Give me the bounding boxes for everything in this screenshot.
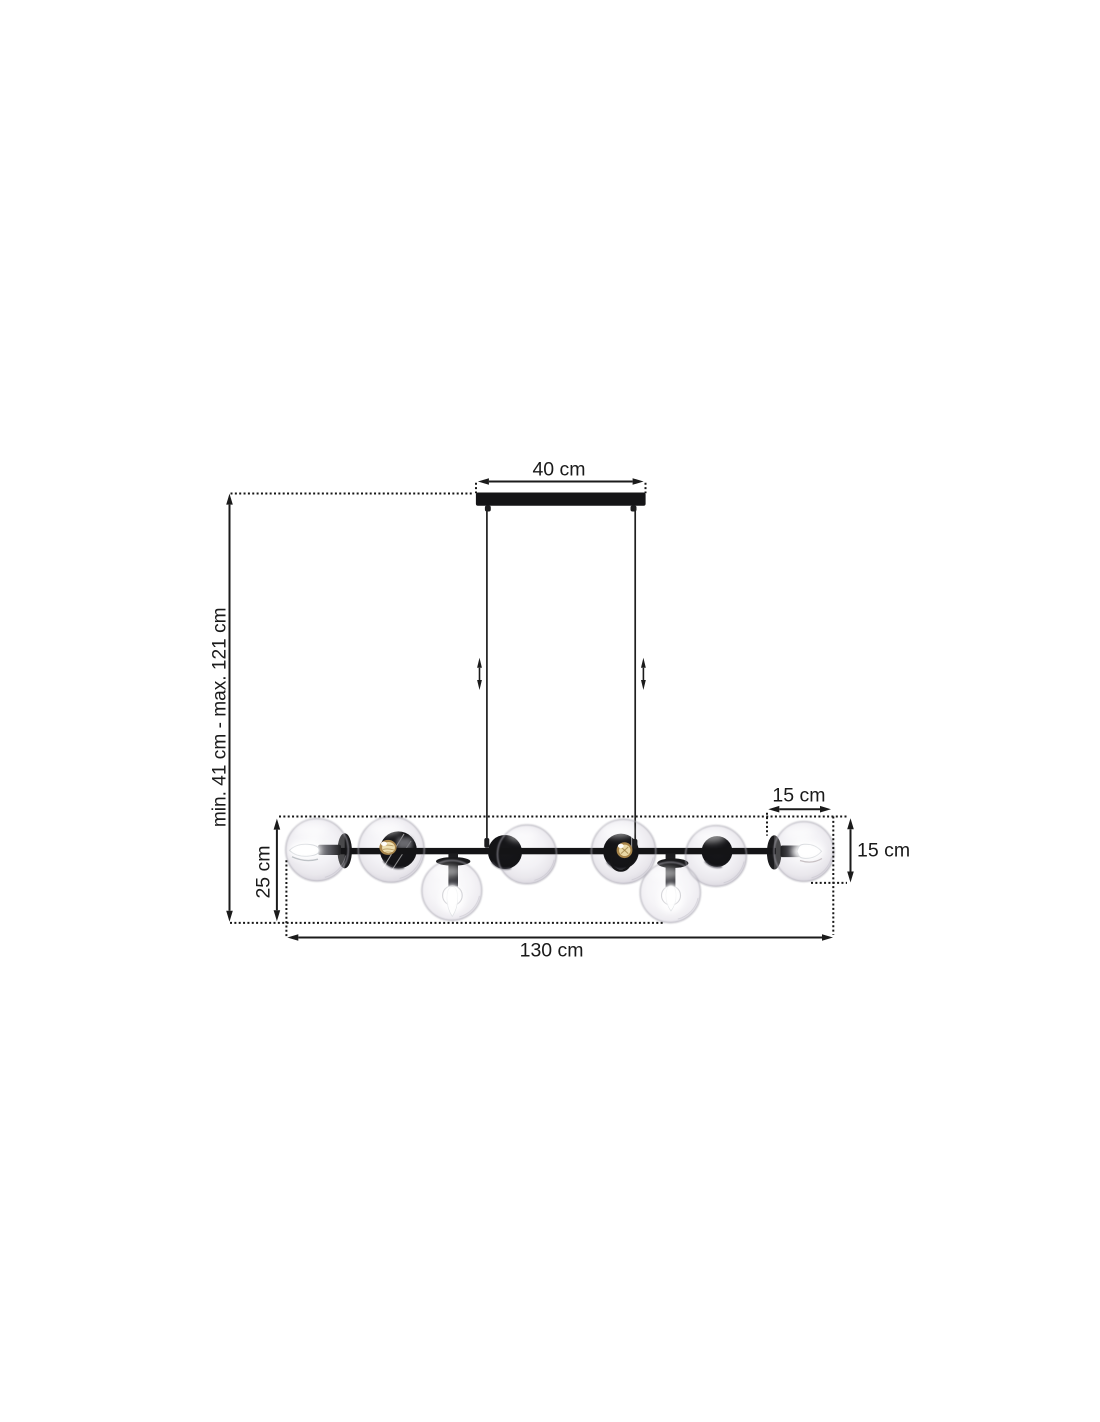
svg-text:15 cm: 15 cm xyxy=(857,840,910,862)
svg-text:min. 41 cm - max. 121 cm: min. 41 cm - max. 121 cm xyxy=(209,607,230,827)
svg-text:40 cm: 40 cm xyxy=(532,459,585,481)
svg-text:25 cm: 25 cm xyxy=(253,845,275,898)
svg-text:15 cm: 15 cm xyxy=(772,785,825,807)
svg-text:130 cm: 130 cm xyxy=(520,940,584,962)
